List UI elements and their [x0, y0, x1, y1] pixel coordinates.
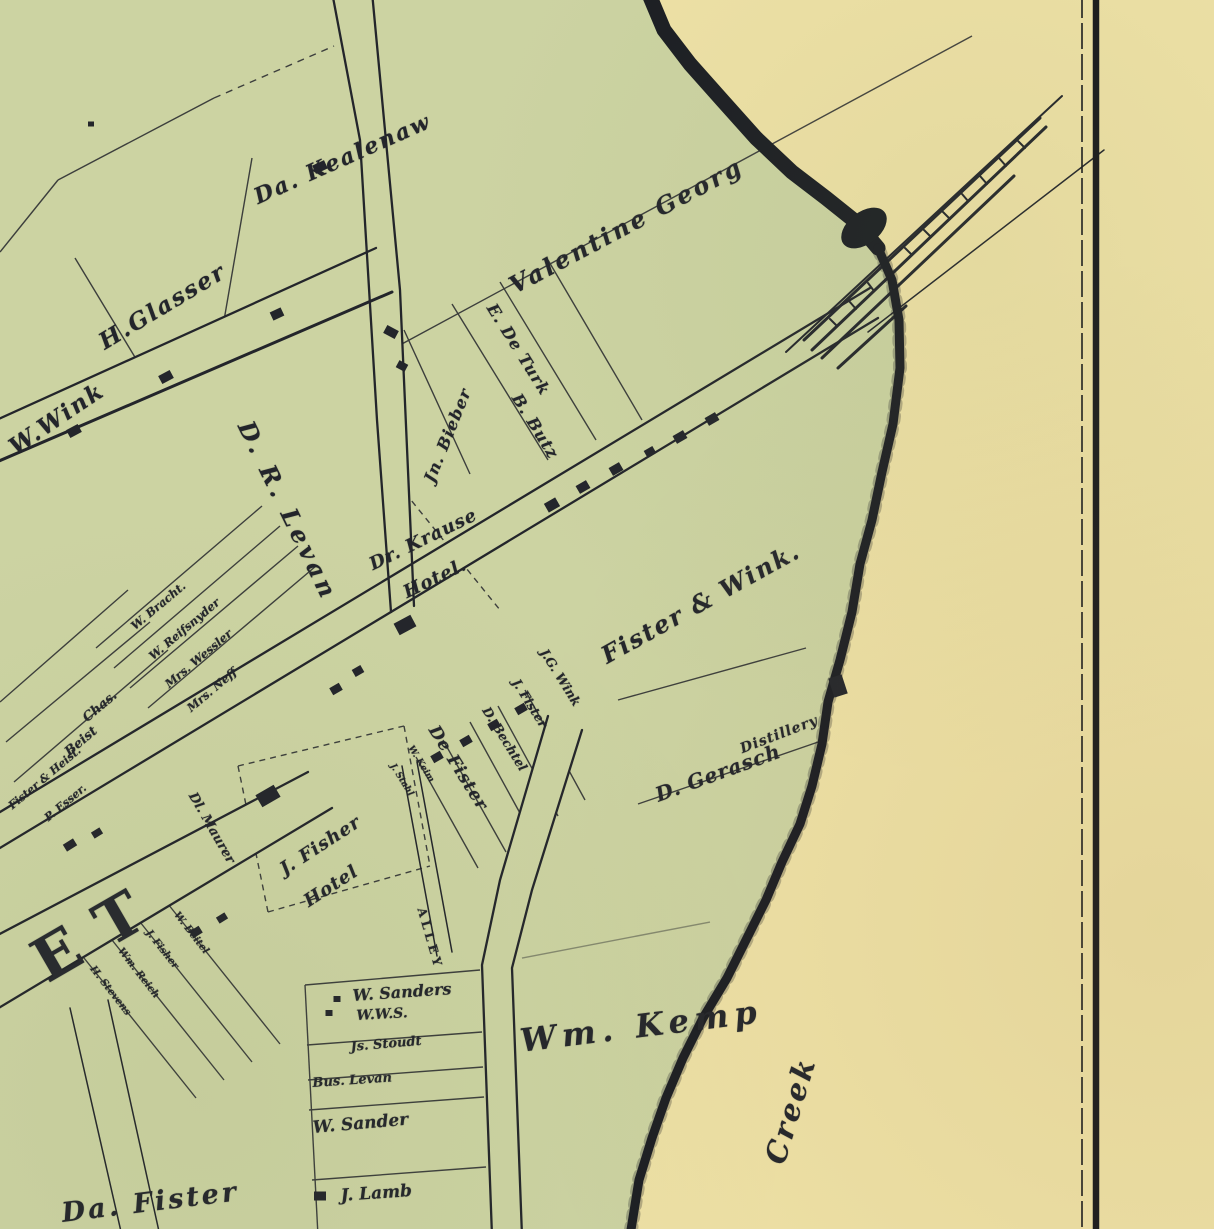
label-w-wink: W.Wink — [4, 377, 110, 460]
label-h-glasser: H.Glasser — [94, 258, 231, 355]
label-fister-and-wink: Fister & Wink. — [596, 536, 805, 670]
label-w-beitel: W. Beitel — [171, 910, 210, 956]
label-creek: Creek — [758, 1052, 823, 1167]
label-layer: Da. KealenawValentine GeorgH.GlasserW.Wi… — [0, 0, 1214, 1229]
label-d-r-levan: D. R. Levan — [232, 416, 344, 605]
label-bus-levan: Bus. Levan — [312, 1070, 393, 1091]
label-dl-maurer: Dl. Maurer — [185, 790, 238, 866]
map-canvas: Da. KealenawValentine GeorgH.GlasserW.Wi… — [0, 0, 1214, 1229]
label-d-gerasch: D. Gerasch — [652, 739, 784, 807]
label-b-butz: B. Butz — [508, 390, 563, 462]
label-j-fister: J. Fister — [509, 676, 551, 730]
label-p-esser: P. Esser. — [42, 782, 89, 824]
label-w-sander: W. Sander — [312, 1110, 409, 1138]
label-jn-bieber: Jn. Bieber — [420, 385, 475, 485]
label-kealenaw: Da. Kealenaw — [250, 108, 435, 209]
label-dr-krause-hotel: Hotel. — [400, 554, 470, 603]
label-w-keim: W. Keim — [406, 744, 436, 784]
label-d-bechtel: D. Bechtel — [479, 704, 530, 774]
label-e-de-turk: E. De Turk — [483, 300, 555, 399]
label-jg-wink: J.G. Wink — [537, 646, 584, 709]
label-da-fister: Da. Fister — [60, 1176, 241, 1228]
label-w-sanders: W. Sanders — [352, 979, 452, 1005]
label-wm-kemp: Wm. Kemp — [518, 992, 765, 1059]
label-j-stahl: J. Stahl — [388, 762, 416, 798]
label-h-stevens: H. Stevens — [87, 964, 132, 1018]
label-wws: W.W.S. — [356, 1005, 408, 1024]
label-j-fisher-hotel: Hotel — [300, 861, 362, 912]
label-j-lamb: J. Lamb — [340, 1181, 413, 1206]
label-js-stoudt: Js. Stoudt — [350, 1034, 422, 1055]
label-valentine-georg: Valentine Georg — [504, 151, 748, 299]
label-alley: ALLEY — [415, 906, 446, 971]
label-chas: Chas. — [80, 688, 120, 725]
label-wm-reich: Wm. Reich — [115, 946, 161, 1001]
label-de-fister: De Fister — [424, 722, 492, 814]
